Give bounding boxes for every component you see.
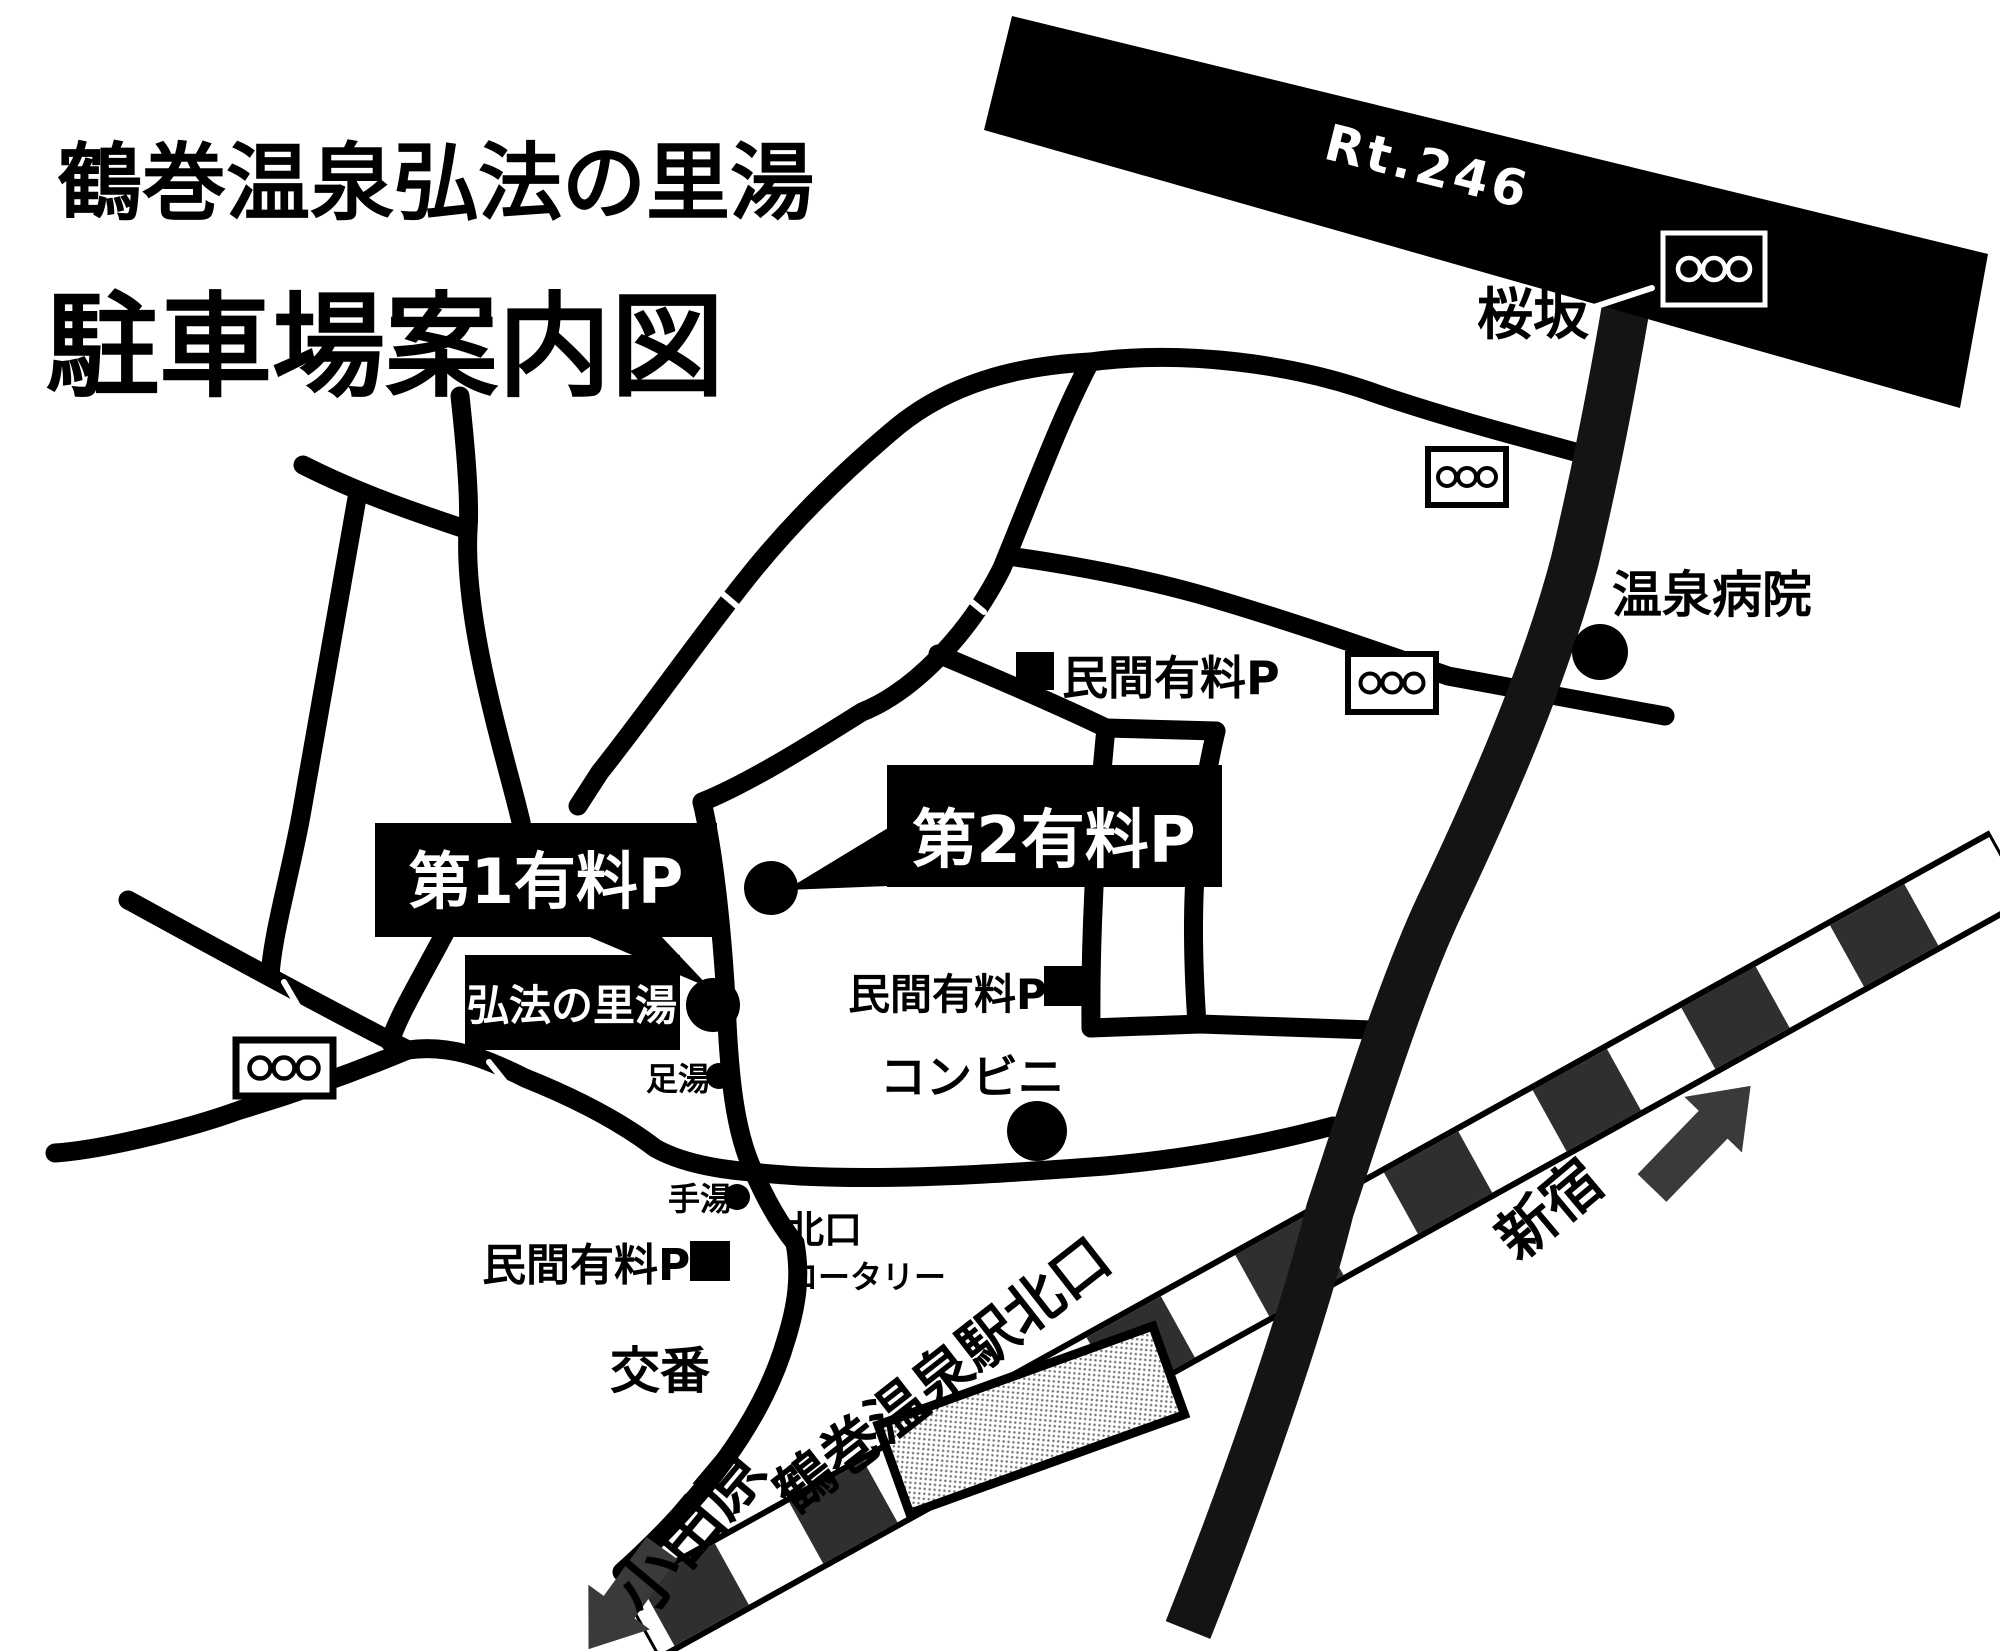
map-canvas: 鶴巻温泉弘法の里湯 駐車場案内図 Rt.246 桜坂 温泉病院 民間有料P 第2… bbox=[0, 0, 2000, 1651]
street-main-eastwest bbox=[408, 1049, 1333, 1178]
teyu-label: 手湯 bbox=[668, 1180, 732, 1218]
traffic-signal-icon-rt246 bbox=[1663, 233, 1765, 305]
map-title-line1: 鶴巻温泉弘法の里湯 bbox=[57, 134, 814, 232]
hospital-label: 温泉病院 bbox=[1612, 566, 1812, 624]
private-parking-top-label: 民間有料P bbox=[1062, 651, 1280, 705]
private-parking-square-icon-top bbox=[1016, 652, 1054, 690]
sakurazaka-label: 桜坂 bbox=[1477, 283, 1589, 348]
p2-plate-label: 第2有料P bbox=[912, 804, 1195, 878]
street-upper-left-steep bbox=[270, 498, 357, 977]
traffic-signal-icon-west bbox=[236, 1040, 333, 1096]
hospital-dot-icon bbox=[1572, 624, 1628, 680]
north-rotary-label-line2: ロータリー bbox=[786, 1258, 946, 1296]
conbini-dot-icon bbox=[1007, 1101, 1067, 1161]
private-parking-bottom-label: 民間有料P bbox=[482, 1240, 690, 1291]
sakurazaka-road bbox=[1188, 295, 1628, 1630]
street-p2-block-top bbox=[1106, 728, 1216, 731]
satoyu-plate-label: 弘法の里湯 bbox=[467, 981, 677, 1030]
street-upper-left-wavy bbox=[303, 465, 468, 530]
conbini-label: コンビニ bbox=[880, 1050, 1064, 1104]
police-box-label: 交番 bbox=[610, 1342, 710, 1400]
private-parking-square-icon-bottom bbox=[690, 1241, 730, 1281]
street-center-vertical bbox=[390, 396, 522, 1042]
satoyu-dot-icon bbox=[686, 978, 740, 1032]
traffic-signal-icon-upper bbox=[1428, 449, 1506, 505]
street-below-p2 bbox=[1091, 1024, 1372, 1030]
ashiyu-label: 足湯 bbox=[646, 1060, 710, 1098]
private-parking-mid-label: 民間有料P bbox=[848, 970, 1047, 1019]
map-title-line2: 駐車場案内図 bbox=[46, 281, 724, 413]
street-west-deadend bbox=[55, 1050, 408, 1153]
street-big-loop-north bbox=[1090, 357, 1575, 452]
p1-plate-label: 第1有料P bbox=[409, 845, 684, 918]
private-parking-square-icon-mid bbox=[1044, 966, 1084, 1006]
north-rotary-label-line1: 北口 bbox=[786, 1208, 862, 1252]
traffic-signal-icon-hospital bbox=[1348, 654, 1436, 712]
p2-plate-pointer bbox=[786, 828, 888, 890]
parking-guide-map: 鶴巻温泉弘法の里湯 駐車場案内図 Rt.246 桜坂 温泉病院 民間有料P 第2… bbox=[0, 0, 2000, 1651]
